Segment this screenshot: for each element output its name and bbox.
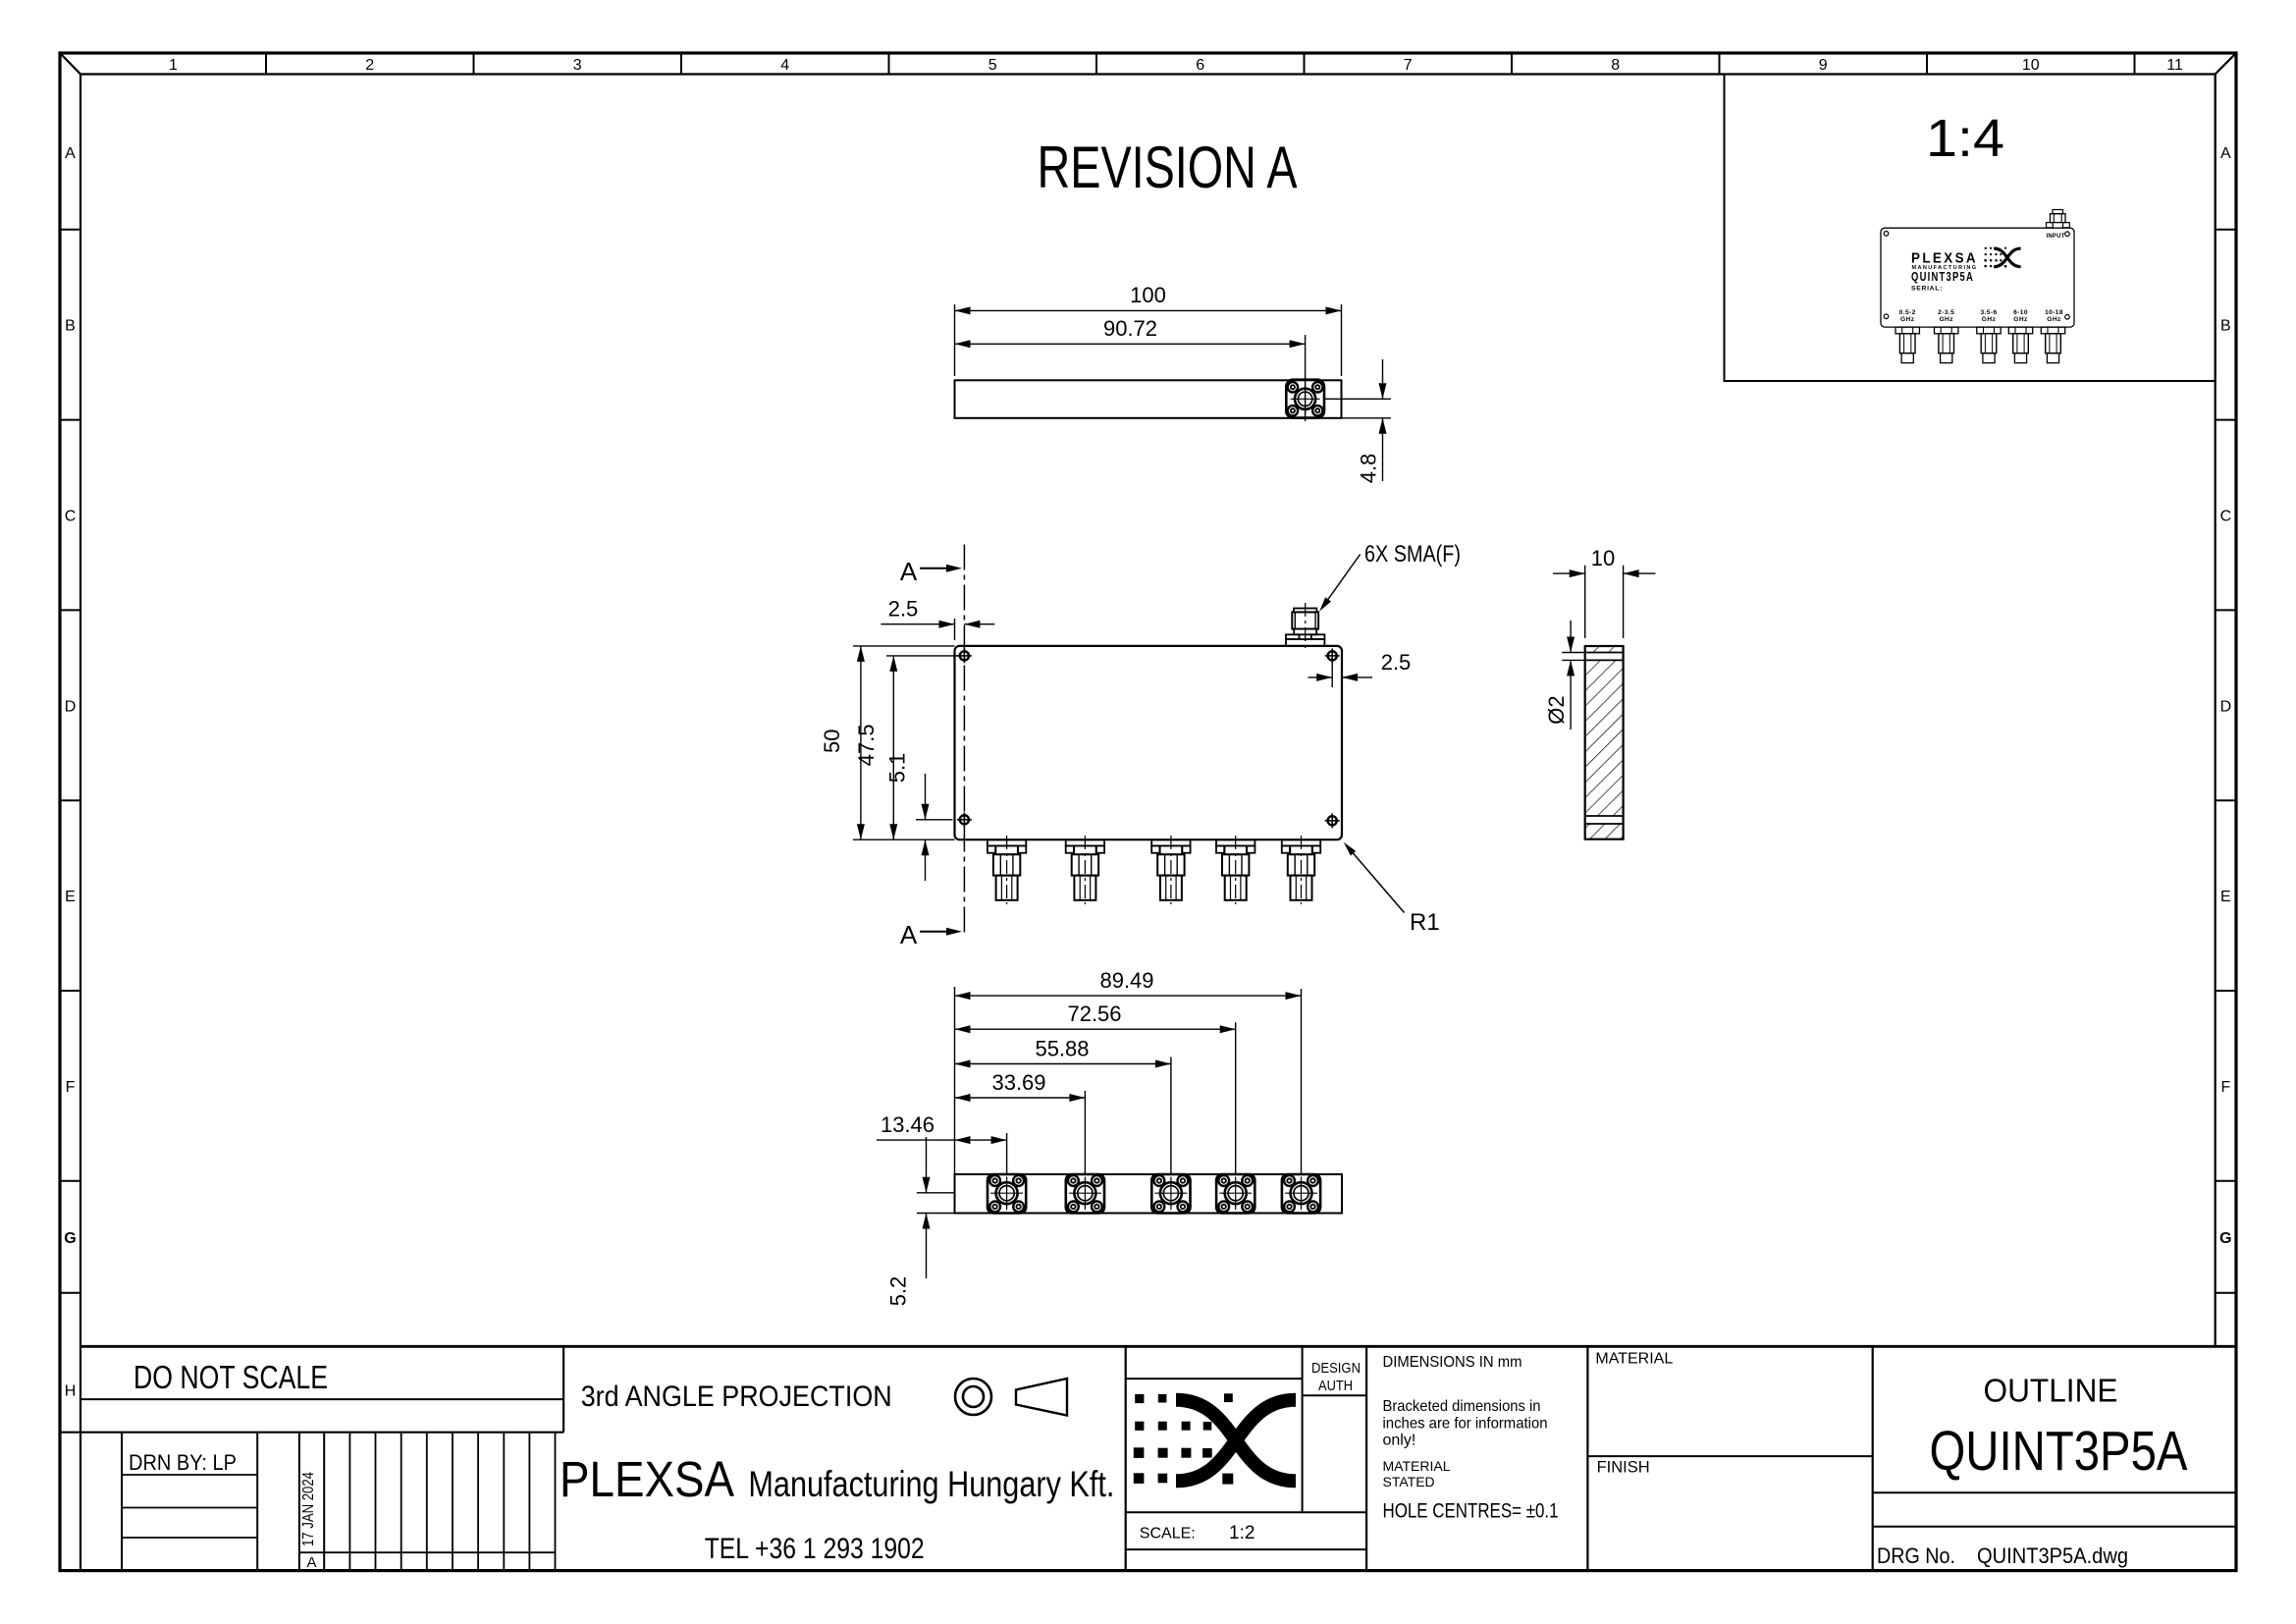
svg-text:REVISION A: REVISION A — [1038, 135, 1298, 200]
svg-text:only!: only! — [1383, 1433, 1416, 1449]
svg-text:89.49: 89.49 — [1099, 968, 1153, 993]
svg-text:2-3.5: 2-3.5 — [1938, 309, 1954, 316]
svg-text:F: F — [66, 1079, 76, 1096]
svg-text:A: A — [900, 557, 918, 586]
svg-text:A: A — [306, 1554, 316, 1571]
svg-text:10: 10 — [1591, 546, 1615, 570]
svg-text:3: 3 — [573, 57, 582, 74]
svg-text:4: 4 — [780, 57, 789, 74]
svg-text:33.69: 33.69 — [991, 1070, 1045, 1095]
svg-text:E: E — [65, 889, 76, 905]
svg-text:HOLE CENTRES= ±0.1: HOLE CENTRES= ±0.1 — [1383, 1499, 1559, 1522]
svg-text:TEL +36 1 293 1902: TEL +36 1 293 1902 — [705, 1533, 925, 1565]
svg-text:F: F — [2220, 1079, 2230, 1096]
svg-text:QUINT3P5A: QUINT3P5A — [1930, 1420, 2188, 1483]
svg-text:DIMENSIONS IN mm: DIMENSIONS IN mm — [1383, 1354, 1522, 1371]
svg-text:5.1: 5.1 — [885, 753, 910, 784]
svg-text:D: D — [65, 698, 77, 715]
svg-text:1:4: 1:4 — [1926, 109, 2004, 168]
svg-text:SERIAL:: SERIAL: — [1911, 285, 1943, 292]
svg-text:Manufacturing Hungary Kft.: Manufacturing Hungary Kft. — [748, 1464, 1114, 1504]
svg-text:B: B — [2220, 318, 2231, 335]
svg-text:B: B — [65, 318, 76, 335]
svg-text:GHz: GHz — [1940, 316, 1954, 323]
svg-text:C: C — [65, 509, 77, 525]
svg-text:QUINT3P5A.dwg: QUINT3P5A.dwg — [1977, 1543, 2128, 1568]
svg-text:1:2: 1:2 — [1229, 1523, 1255, 1543]
svg-text:DO NOT SCALE: DO NOT SCALE — [133, 1359, 328, 1395]
svg-text:1: 1 — [169, 57, 178, 74]
svg-text:Bracketed dimensions in: Bracketed dimensions in — [1383, 1398, 1541, 1415]
svg-text:5: 5 — [988, 57, 997, 74]
svg-text:5.2: 5.2 — [886, 1276, 911, 1307]
svg-text:E: E — [2220, 889, 2231, 905]
svg-text:2.5: 2.5 — [1381, 650, 1412, 675]
svg-text:72.56: 72.56 — [1067, 1001, 1121, 1026]
svg-text:11: 11 — [2166, 57, 2183, 74]
svg-text:PLEXSA: PLEXSA — [560, 1451, 734, 1507]
svg-text:MATERIAL: MATERIAL — [1595, 1351, 1673, 1368]
svg-text:A: A — [65, 145, 76, 162]
svg-text:DESIGN: DESIGN — [1311, 1360, 1361, 1377]
svg-text:10-18: 10-18 — [2045, 309, 2063, 316]
svg-text:INPUT: INPUT — [2047, 233, 2065, 240]
svg-text:GHz: GHz — [1982, 316, 1997, 323]
svg-text:GHz: GHz — [2047, 316, 2061, 323]
svg-text:50: 50 — [820, 729, 844, 752]
svg-text:GHz: GHz — [1900, 316, 1915, 323]
svg-text:STATED: STATED — [1383, 1474, 1435, 1489]
svg-text:Ø2: Ø2 — [1544, 695, 1569, 724]
svg-text:H: H — [65, 1383, 77, 1400]
svg-text:QUINT3P5A: QUINT3P5A — [1911, 269, 1974, 284]
svg-text:OUTLINE: OUTLINE — [1984, 1373, 2118, 1409]
svg-text:FINISH: FINISH — [1597, 1458, 1650, 1476]
svg-text:2: 2 — [365, 57, 374, 74]
svg-text:9: 9 — [1819, 57, 1828, 74]
svg-text:AUTH: AUTH — [1318, 1378, 1353, 1394]
svg-text:DRG No.: DRG No. — [1877, 1543, 1955, 1568]
svg-text:inches are for information: inches are for information — [1383, 1415, 1548, 1432]
svg-text:6: 6 — [1196, 57, 1204, 74]
svg-text:7: 7 — [1404, 57, 1413, 74]
svg-text:13.46: 13.46 — [881, 1112, 934, 1137]
svg-text:3rd ANGLE PROJECTION: 3rd ANGLE PROJECTION — [581, 1380, 892, 1413]
svg-text:SCALE:: SCALE: — [1140, 1526, 1196, 1543]
svg-text:A: A — [2220, 145, 2231, 162]
svg-text:6X SMA(F): 6X SMA(F) — [1364, 541, 1461, 568]
svg-text:100: 100 — [1130, 283, 1166, 307]
svg-text:C: C — [2220, 509, 2232, 525]
svg-text:G: G — [64, 1230, 76, 1247]
svg-text:0.5-2: 0.5-2 — [1899, 309, 1916, 316]
svg-text:G: G — [2219, 1230, 2231, 1247]
svg-text:47.5: 47.5 — [854, 724, 879, 766]
svg-text:8: 8 — [1611, 57, 1620, 74]
svg-text:2.5: 2.5 — [888, 597, 919, 622]
svg-text:3.5-6: 3.5-6 — [1980, 309, 1997, 316]
svg-text:D: D — [2220, 698, 2232, 715]
svg-text:DRN BY: LP: DRN BY: LP — [129, 1450, 237, 1475]
svg-text:GHz: GHz — [2013, 316, 2028, 323]
svg-text:MATERIAL: MATERIAL — [1383, 1458, 1451, 1474]
svg-text:10: 10 — [2022, 57, 2040, 74]
svg-text:6-10: 6-10 — [2013, 309, 2028, 316]
svg-text:90.72: 90.72 — [1103, 316, 1157, 341]
svg-text:55.88: 55.88 — [1035, 1037, 1089, 1061]
svg-text:A: A — [900, 920, 918, 949]
svg-text:R1: R1 — [1410, 909, 1440, 936]
svg-text:4.8: 4.8 — [1357, 454, 1381, 484]
svg-text:17 JAN 2024: 17 JAN 2024 — [300, 1472, 317, 1546]
